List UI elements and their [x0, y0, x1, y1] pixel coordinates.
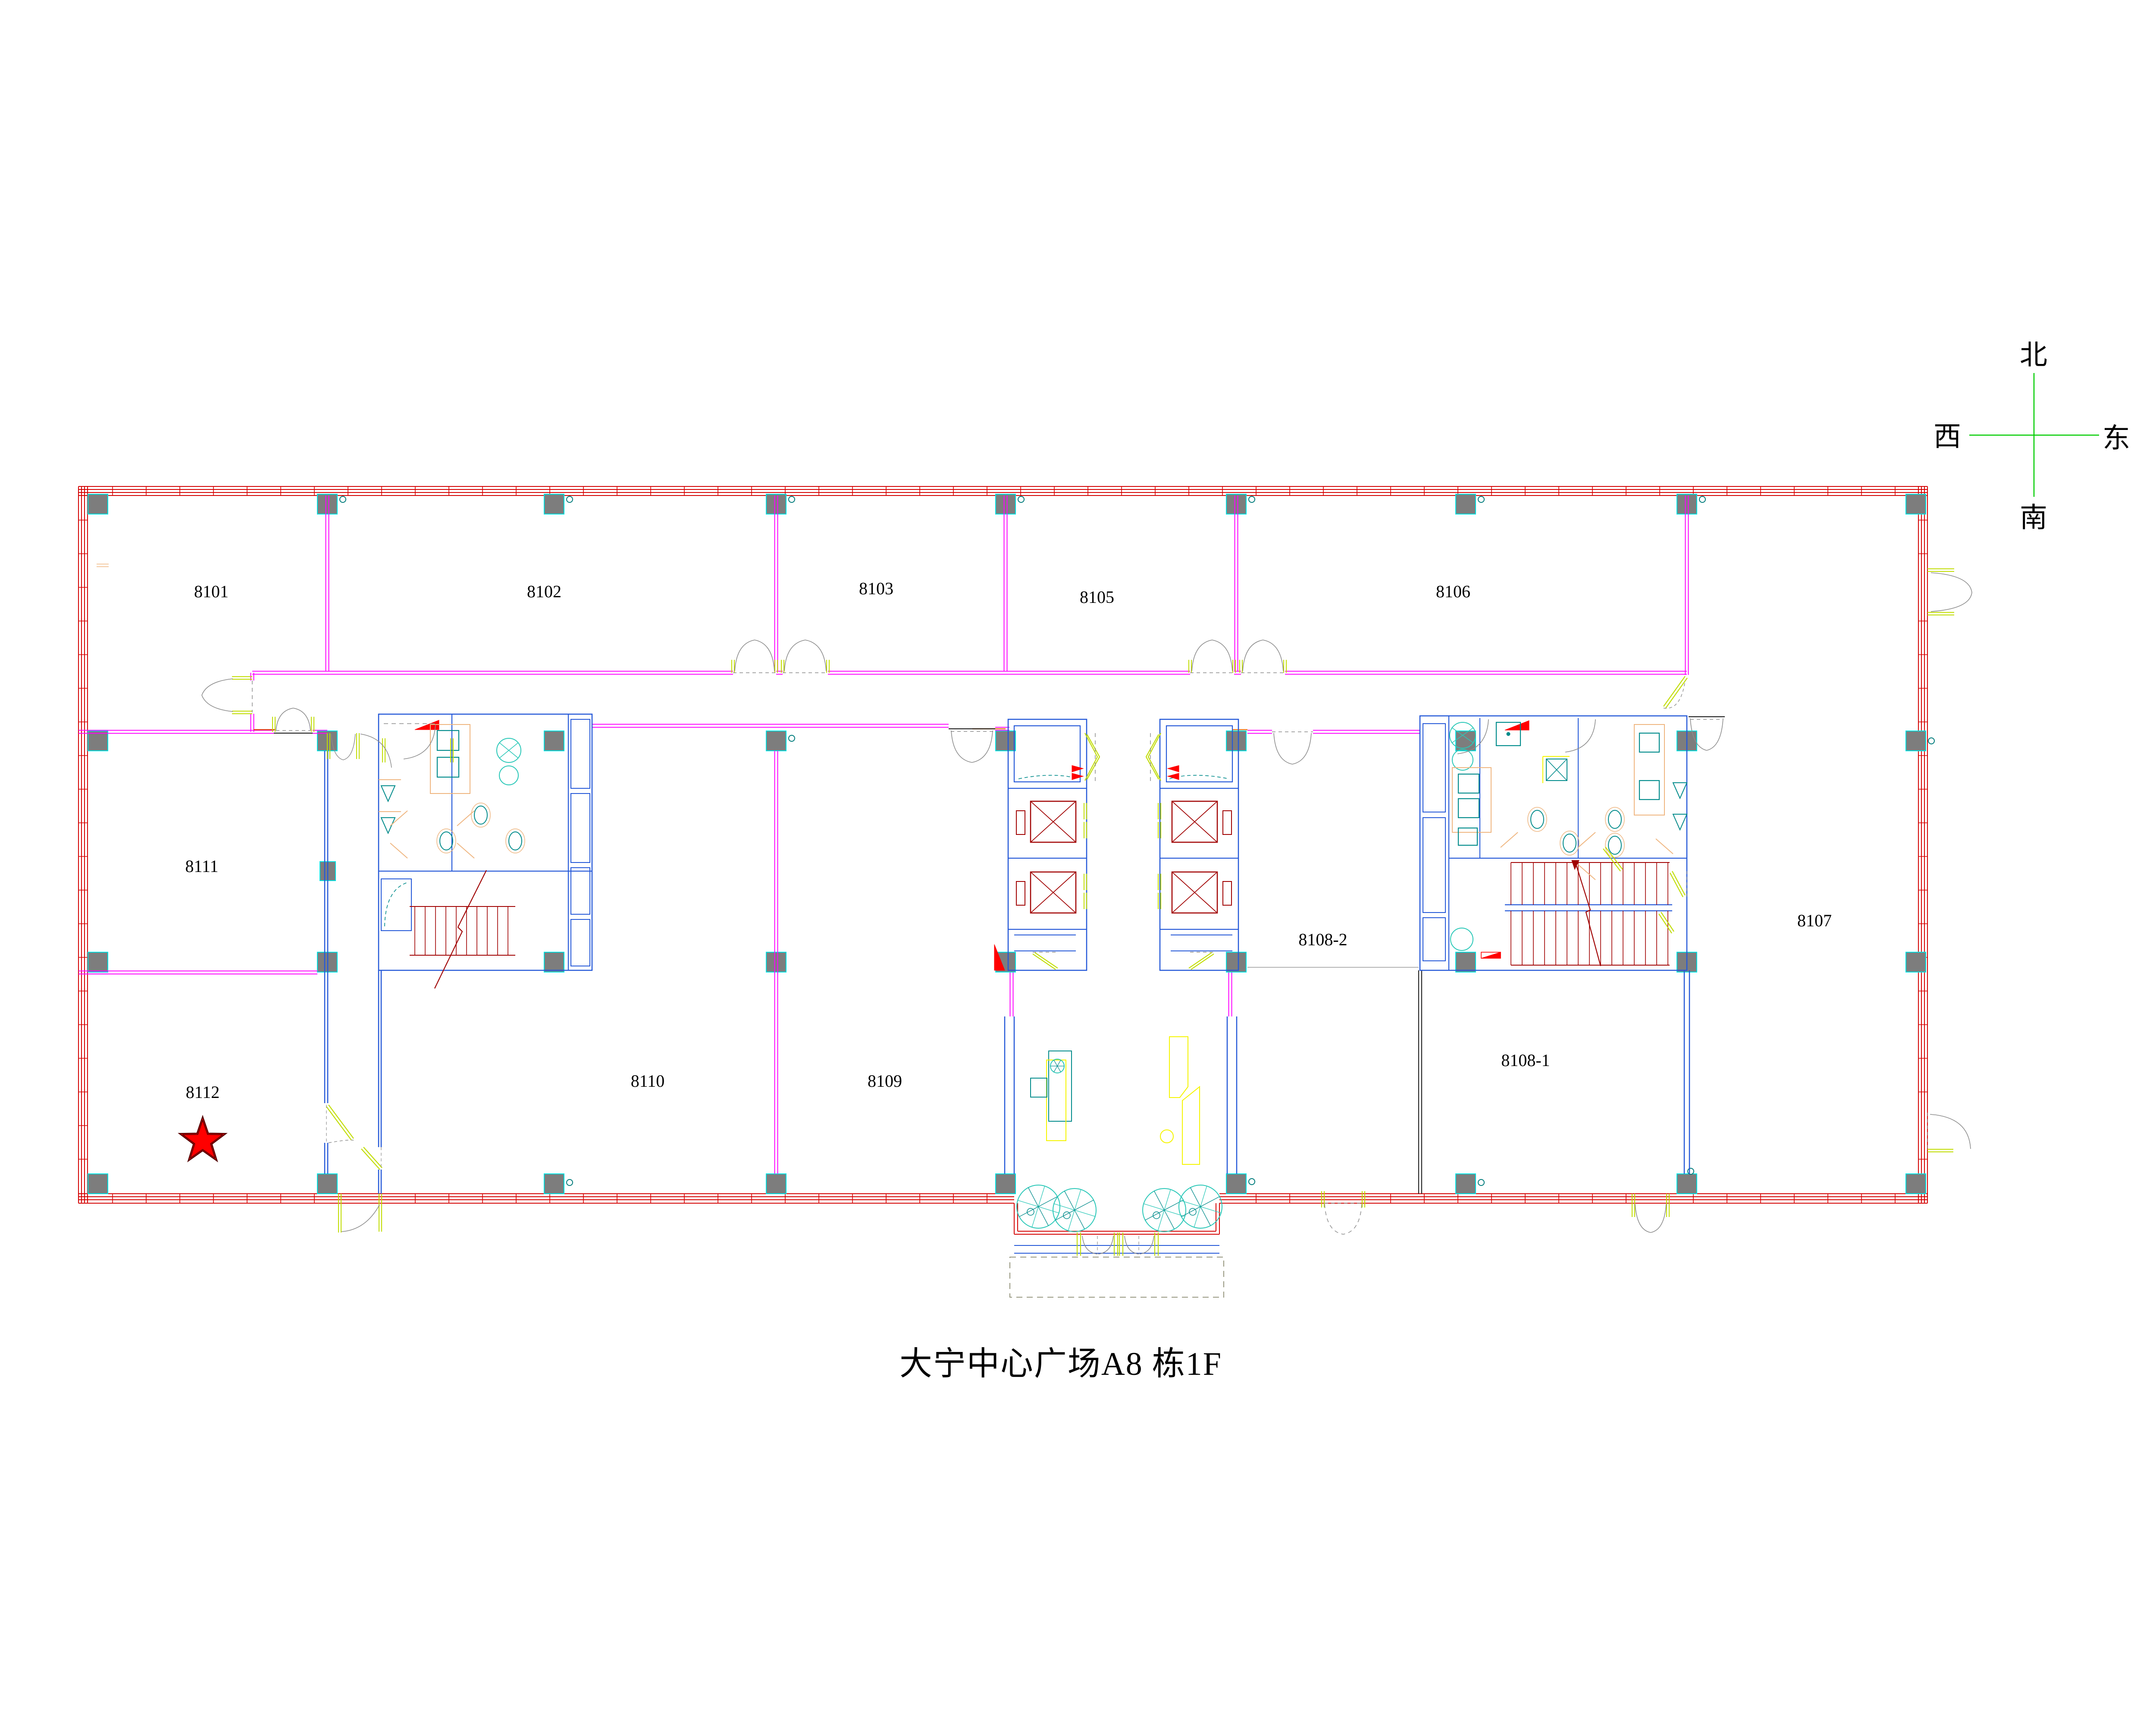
room-label-8110: 8110	[631, 1071, 665, 1091]
room-label-8108-2: 8108-2	[1298, 930, 1347, 949]
compass-north-label: 北	[2020, 340, 2047, 370]
room-label-8101: 8101	[194, 582, 229, 601]
room-label-8109: 8109	[868, 1071, 902, 1091]
room-label-8112: 8112	[186, 1082, 220, 1102]
floorplan-canvas: 北 南 西 东 8101810281038105810681078108-281…	[0, 0, 2156, 1725]
compass-south-label: 南	[2020, 502, 2047, 533]
room-label-8107: 8107	[1797, 911, 1832, 930]
drawing-title: 大宁中心广场A8 栋1F	[899, 1346, 1222, 1382]
room-label-8102: 8102	[527, 582, 561, 601]
drawing-layers	[78, 486, 1972, 1297]
compass-rose: 北 南 西 东	[1934, 340, 2130, 533]
room-label-8105: 8105	[1080, 587, 1114, 607]
compass-east-label: 东	[2103, 423, 2130, 454]
floor-plan-svg: 北 南 西 东 8101810281038105810681078108-281…	[0, 0, 2156, 1725]
room-label-8111: 8111	[185, 856, 218, 876]
compass-west-label: 西	[1934, 421, 1961, 452]
star-marker	[179, 1117, 226, 1161]
room-label-8106: 8106	[1436, 582, 1470, 601]
star-shape	[179, 1117, 226, 1161]
generated-plan-geometry	[78, 486, 1972, 1297]
room-label-8103: 8103	[859, 579, 893, 598]
room-label-8108-1: 8108-1	[1501, 1051, 1550, 1070]
